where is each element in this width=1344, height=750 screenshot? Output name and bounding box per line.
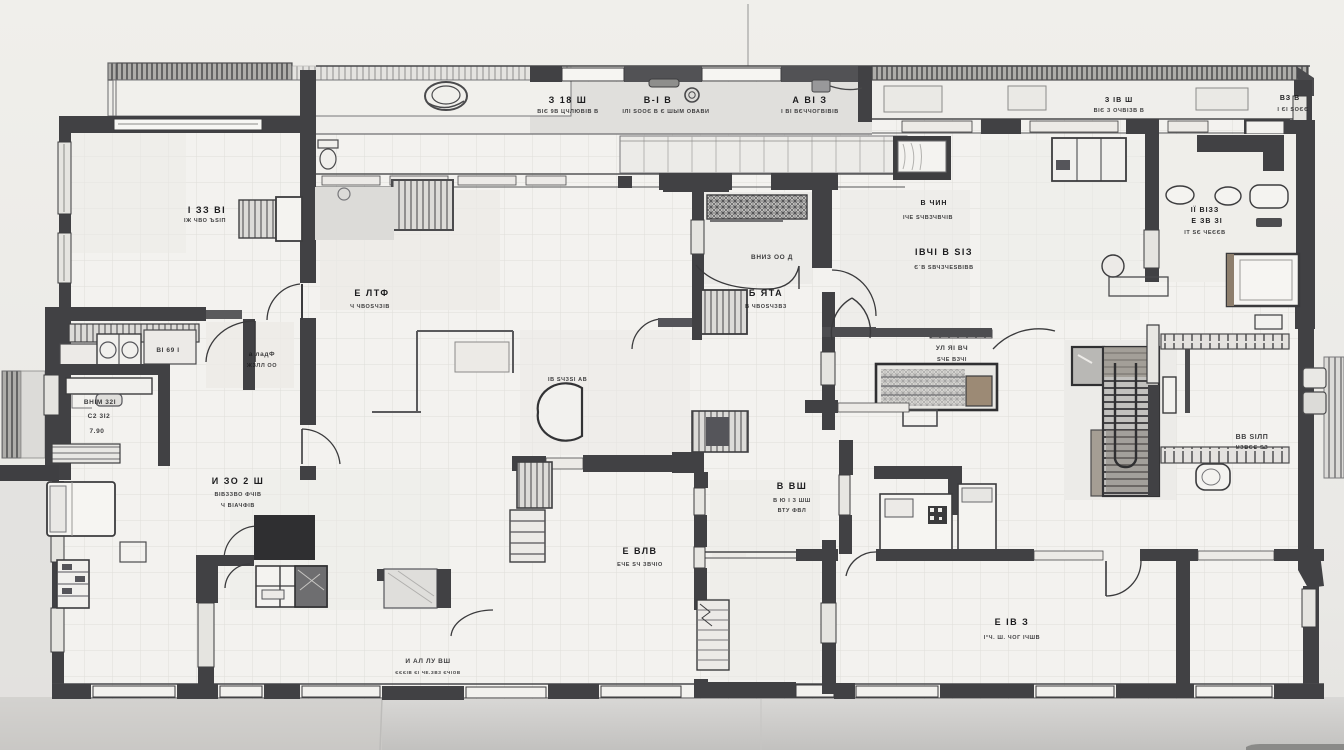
svg-text:ВВ ЅІЛП: ВВ ЅІЛП xyxy=(1236,434,1269,441)
svg-text:І ВІ ВЄЧЧОГВІВІВ: І ВІ ВЄЧЧОГВІВІВ xyxy=(781,109,839,115)
svg-text:З 18 Ш: З 18 Ш xyxy=(549,95,588,105)
svg-text:ІВ ЅЧЗЅІ АВ: ІВ ЅЧЗЅІ АВ xyxy=(548,377,587,383)
svg-text:ІЖ ЧВО ЪЅІП: ІЖ ЧВО ЪЅІП xyxy=(184,218,226,224)
svg-text:А ВІ З: А ВІ З xyxy=(792,95,827,105)
svg-text:ЅЧЕ ВЗЧІ: ЅЧЕ ВЗЧІ xyxy=(937,357,967,363)
svg-text:И ЗО 2 Ш: И ЗО 2 Ш xyxy=(212,476,265,486)
svg-text:И АЛ ЛУ ВШ: И АЛ ЛУ ВШ xyxy=(405,658,450,665)
svg-text:З ІВ Ш: З ІВ Ш xyxy=(1105,97,1133,104)
svg-text:УЛ ЯІ ВЧ: УЛ ЯІ ВЧ xyxy=(936,345,968,352)
svg-text:Ч ЧВОЅЧЗІВ: Ч ЧВОЅЧЗІВ xyxy=(350,304,390,310)
svg-text:ВІЄ З ОЧВІЗВ В: ВІЄ З ОЧВІЗВ В xyxy=(1094,108,1145,114)
svg-text:ЖЗЛЛ ОО: ЖЗЛЛ ОО xyxy=(246,363,277,369)
svg-text:Е ІВ З: Е ІВ З xyxy=(995,617,1030,627)
svg-text:ІТ ЅЄ ЧЕЄЄВ: ІТ ЅЄ ЧЕЄЄВ xyxy=(1184,230,1225,236)
svg-text:ІЇ ВІЗЗ: ІЇ ВІЗЗ xyxy=(1191,206,1220,214)
svg-text:ІВЧІ В ЅІЗ: ІВЧІ В ЅІЗ xyxy=(915,247,973,257)
svg-text:ЕЧЕ ЅЧ ЗВЧІО: ЕЧЕ ЅЧ ЗВЧІО xyxy=(617,562,663,568)
svg-text:Ч ВІАЧФІВ: Ч ВІАЧФІВ xyxy=(221,503,255,509)
svg-text:ВНИЗ ОО Д: ВНИЗ ОО Д xyxy=(751,254,793,261)
svg-text:І ЄІ ЅОЄЄ: І ЄІ ЅОЄЄ xyxy=(1277,107,1308,113)
svg-text:ІЧЕ ЅЧВЗЧВЧІВ: ІЧЕ ЅЧВЗЧВЧІВ xyxy=(903,215,953,221)
svg-text:ВТУ ФВЛ: ВТУ ФВЛ xyxy=(778,508,807,514)
svg-text:ВІВЗЗВО ФЧІВ: ВІВЗЗВО ФЧІВ xyxy=(214,492,261,498)
svg-text:7.90: 7.90 xyxy=(89,428,104,435)
svg-text:В ЧИН: В ЧИН xyxy=(920,200,947,207)
svg-text:ВІЄ 9В ЦЧЛЮВІВ В: ВІЄ 9В ЦЧЛЮВІВ В xyxy=(537,109,599,115)
svg-text:В ЧВОЅЧЗВЗ: В ЧВОЅЧЗВЗ xyxy=(745,304,787,310)
svg-text:І°Ч. Ш. ЧОГ ІЧШВ: І°Ч. Ш. ЧОГ ІЧШВ xyxy=(984,635,1041,641)
svg-text:ЄЄЄІВ ЄІ ЧЕ.ЗВЗ ЄЧІОВ: ЄЄЄІВ ЄІ ЧЕ.ЗВЗ ЄЧІОВ xyxy=(395,670,461,675)
svg-text:Е ЗВ ЗІ: Е ЗВ ЗІ xyxy=(1191,218,1222,225)
svg-text:Є`В ЅВЧЗЧЕЅВІВВ: Є`В ЅВЧЗЧЕЅВІВВ xyxy=(914,265,973,271)
svg-text:ВНІМ 32І: ВНІМ 32І xyxy=(84,399,116,406)
svg-text:ІЛІ ЅООЄ В Є ШЫМ ОВАВИ: ІЛІ ЅООЄ В Є ШЫМ ОВАВИ xyxy=(622,109,709,115)
svg-text:Е ВЛВ: Е ВЛВ xyxy=(622,546,657,556)
svg-text:В-І В: В-І В xyxy=(644,95,673,105)
svg-text:І ЗЗ ВІ: І ЗЗ ВІ xyxy=(188,205,226,215)
svg-text:Е ЛТФ: Е ЛТФ xyxy=(354,288,389,298)
svg-text:В ВШ: В ВШ xyxy=(777,481,808,491)
svg-text:ВІ 69 І: ВІ 69 І xyxy=(156,347,179,354)
svg-text:С2 3І2: С2 3І2 xyxy=(88,413,111,420)
svg-text:В Ю І З ШШ: В Ю І З ШШ xyxy=(773,498,811,504)
svg-text:а ладФ: а ладФ xyxy=(249,351,275,358)
svg-text:ВЗ В: ВЗ В xyxy=(1280,95,1300,102)
svg-text:ЧЗВЄЄ ЅЗ: ЧЗВЄЄ ЅЗ xyxy=(1236,445,1269,451)
svg-text:Б ЯТА: Б ЯТА xyxy=(749,288,783,298)
